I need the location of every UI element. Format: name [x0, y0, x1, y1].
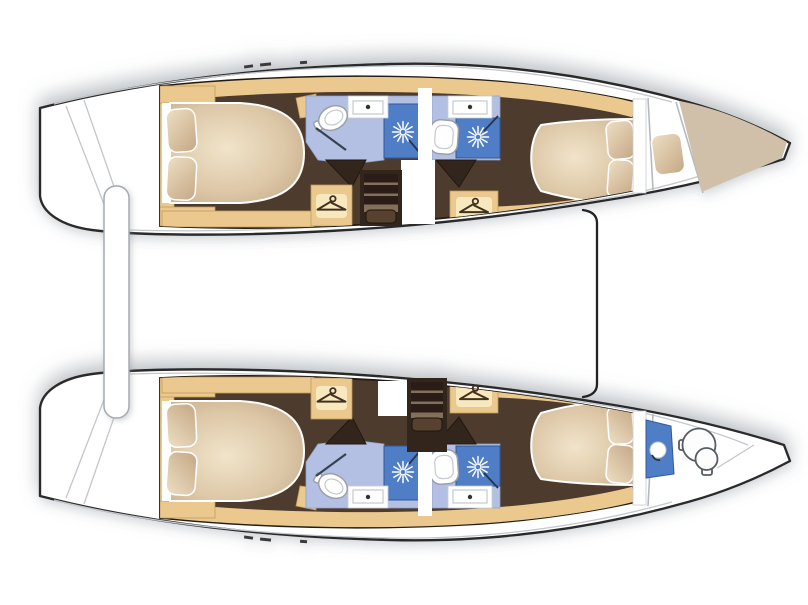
companionway-landing	[401, 160, 435, 224]
top-hull	[40, 61, 790, 235]
forepeak-washbasin-unit	[646, 420, 674, 478]
companionway-landing	[378, 381, 407, 416]
deck-plan-canvas	[0, 0, 808, 605]
crew-berth-cushion	[650, 132, 685, 176]
forward-beam	[583, 210, 597, 397]
bottom-hull	[40, 369, 790, 543]
stairs	[407, 378, 447, 452]
deck-plan-stage: Catamaran sailing yacht interior deck pl…	[0, 0, 808, 605]
stairs	[360, 170, 402, 226]
aft-crossbeam	[104, 186, 129, 418]
